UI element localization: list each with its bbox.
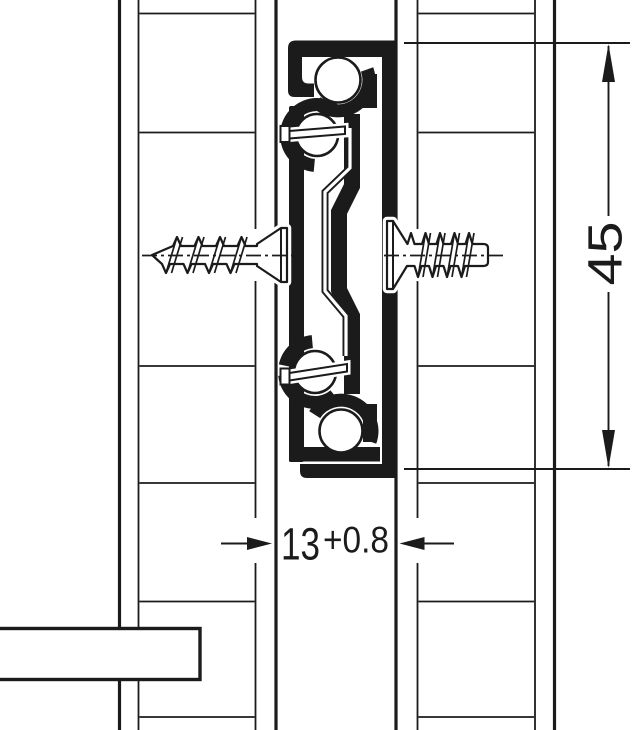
right-mounting-screw	[384, 221, 507, 289]
ball-bearing-bottom	[320, 410, 363, 453]
drawer-slide-cross-section: 45 13 +0.8	[0, 0, 640, 730]
left-cabinet-panel	[120, 0, 277, 730]
arrowhead-up	[602, 44, 615, 82]
outer-rail-bottom-flange	[300, 464, 398, 478]
dimension-width-value: 13	[281, 519, 320, 570]
left-mounting-screw	[142, 228, 296, 282]
panel-segment-lines	[419, 14, 535, 718]
ball-bearing-top	[316, 58, 361, 103]
arrowhead-right	[247, 537, 272, 550]
arrowhead-down	[602, 430, 615, 468]
panel-segment-lines	[140, 14, 255, 718]
dimension-width-tolerance: +0.8	[323, 520, 389, 561]
pin-cap	[281, 126, 290, 142]
dimension-height-value: 45	[580, 222, 633, 286]
dimension-width: 13 +0.8	[221, 519, 454, 570]
technical-drawing-canvas: 45 13 +0.8	[0, 0, 640, 730]
pin-cap	[281, 369, 290, 385]
arrowhead-left	[400, 537, 425, 550]
right-cabinet-panel	[396, 0, 555, 730]
drawer-bottom-panel	[0, 629, 200, 680]
